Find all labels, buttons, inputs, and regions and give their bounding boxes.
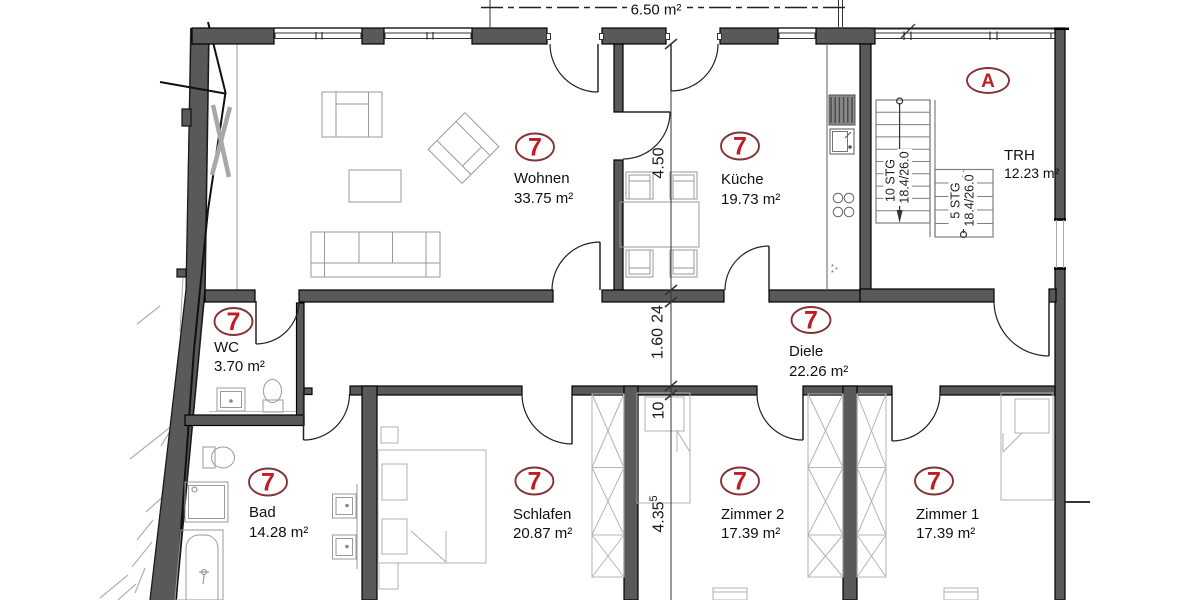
svg-text:7: 7 [804, 307, 818, 335]
svg-text:5 STG: 5 STG [949, 182, 963, 218]
svg-text:17.39 m²: 17.39 m² [916, 525, 975, 542]
svg-text:7: 7 [927, 468, 941, 496]
svg-text:22.26 m²: 22.26 m² [789, 363, 848, 380]
svg-text:3.70 m²: 3.70 m² [214, 358, 265, 375]
svg-text:33.75 m²: 33.75 m² [514, 190, 573, 207]
svg-text:17.39 m²: 17.39 m² [721, 525, 780, 542]
svg-text:Zimmer 2: Zimmer 2 [721, 506, 784, 523]
svg-text:Zimmer 1: Zimmer 1 [916, 506, 979, 523]
svg-text:14.28 m²: 14.28 m² [249, 524, 308, 541]
svg-text:7: 7 [733, 133, 747, 161]
svg-text:18.4/26.0: 18.4/26.0 [898, 151, 912, 203]
svg-text:6.50 m²: 6.50 m² [631, 2, 682, 19]
svg-text:Wohnen: Wohnen [514, 170, 570, 187]
svg-text:4.50: 4.50 [651, 147, 668, 178]
svg-text:10 STG: 10 STG [884, 159, 898, 202]
svg-text:12.23 m²: 12.23 m² [1004, 165, 1060, 181]
svg-text:*: * [831, 270, 834, 277]
svg-text:Küche: Küche [721, 171, 764, 188]
svg-text:24: 24 [650, 305, 667, 323]
svg-text:10: 10 [651, 402, 668, 420]
svg-text:*: * [835, 267, 838, 274]
svg-text:Bad: Bad [249, 504, 276, 521]
svg-text:Schlafen: Schlafen [513, 506, 571, 523]
svg-text:20.87 m²: 20.87 m² [513, 525, 572, 542]
svg-text:Diele: Diele [789, 343, 823, 360]
svg-text:1.60: 1.60 [650, 328, 667, 359]
svg-text:7: 7 [527, 468, 541, 496]
svg-text:A: A [981, 71, 995, 92]
svg-text:7: 7 [733, 468, 747, 496]
svg-text:7: 7 [528, 134, 542, 162]
svg-text:7: 7 [261, 469, 275, 497]
svg-text:7: 7 [227, 308, 241, 336]
svg-text:19.73 m²: 19.73 m² [721, 191, 780, 208]
svg-text:TRH: TRH [1004, 147, 1035, 164]
svg-text:WC: WC [214, 339, 239, 356]
svg-text:18.4/26.0: 18.4/26.0 [963, 174, 977, 226]
